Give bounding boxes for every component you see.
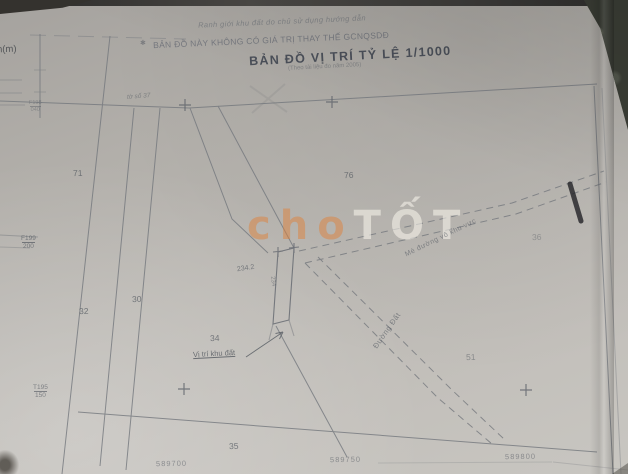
survey-marker-value: 200 <box>22 242 35 250</box>
parcel-label-71: 71 <box>73 168 83 178</box>
parcel-label-76: 76 <box>344 170 354 180</box>
disclaimer-mark-icon: ✱ <box>140 39 146 47</box>
parcel-label-34: 34 <box>210 333 220 343</box>
pen-stroke-mark <box>570 184 581 221</box>
coordinate-label-589700: 589700 <box>156 459 187 469</box>
paper-crease-marks <box>250 84 287 113</box>
photo-top-edge-shadow <box>0 0 628 6</box>
survey-marker-value: 150 <box>34 391 47 399</box>
survey-marker-f198: F198 040 <box>29 100 42 113</box>
parcel-label-30: 30 <box>132 294 142 304</box>
watermark-cho-text: cho <box>247 203 354 249</box>
coordinate-label-589800: 589800 <box>505 452 536 462</box>
watermark-tot-text: TỐT <box>354 203 470 249</box>
scanned-cadastral-map-photo: choTỐT h(m) Ranh giới khu đất do chủ sử … <box>0 0 628 474</box>
survey-marker-name: T195 <box>33 384 48 391</box>
parcel-label-32: 32 <box>79 306 89 316</box>
survey-marker-name: F199 <box>21 235 36 242</box>
boundary-legend-dash-line <box>30 35 186 39</box>
survey-marker-f199: F199 200 <box>21 235 36 250</box>
coordinate-label-589750: 589750 <box>330 455 361 465</box>
survey-marker-value: 040 <box>30 106 41 113</box>
subject-plot-outline <box>269 243 299 340</box>
elevation-unit-label: h(m) <box>0 44 17 56</box>
parcel-label-36: 36 <box>532 232 542 242</box>
parcel-boundary-lines <box>0 34 628 474</box>
parcel-label-51: 51 <box>466 352 476 362</box>
location-callout-arrow <box>246 332 283 357</box>
plot-strip-inner-label: 234 <box>269 276 276 287</box>
survey-marker-t195: T195 150 <box>33 384 48 399</box>
parcel-label-35: 35 <box>229 441 239 451</box>
photo-bottomleft-smudge <box>0 450 19 474</box>
